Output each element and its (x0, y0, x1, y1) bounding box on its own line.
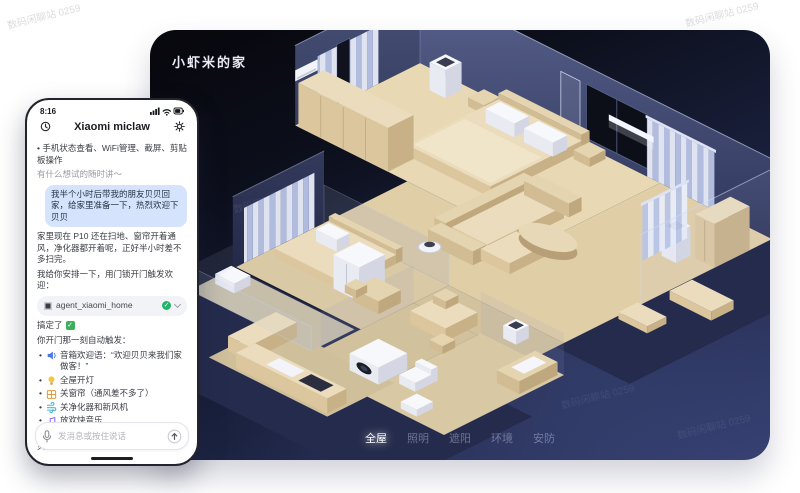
chat-title: Xiaomi miclaw (74, 121, 150, 133)
send-button[interactable] (167, 429, 182, 444)
action-item: 关窗帘（通风差不多了） (39, 388, 187, 400)
watermark: 数码闲聊站 0259 (5, 0, 81, 32)
chat-transcript: 手机状态查看、WiFi管理、截屏、剪贴板操作 有什么想试的随时讲～ 我半个小时后… (27, 138, 197, 453)
speaker-icon (46, 350, 57, 361)
mic-icon[interactable] (42, 430, 52, 443)
settings-button[interactable] (172, 119, 186, 133)
feature-bullet: 手机状态查看、WiFi管理、截屏、剪贴板操作 (37, 143, 187, 166)
action-text: 关净化器和新风机 (60, 402, 128, 414)
message-input[interactable] (56, 430, 163, 442)
fan-icon (46, 402, 57, 413)
assistant-reply: 家里现在 P10 还在扫地、窗帘开着通风，净化器都开着呢，正好半小时差不多扫完。 (37, 231, 187, 266)
chat-header: Xiaomi miclaw (27, 116, 197, 138)
gear-icon (174, 121, 185, 132)
agent-card[interactable]: agent_xiaomi_home ✓ (37, 296, 187, 316)
status-bar: 8:16 (27, 100, 197, 116)
room-nav: 全屋 照明 遮阳 环境 安防 (150, 430, 770, 446)
agent-icon (44, 302, 52, 310)
assistant-reply: 我给你安排一下，用门锁开门触发欢迎： (37, 269, 187, 292)
floorplan-3d (150, 30, 770, 460)
trigger-intro: 你开门那一刻自动触发： (37, 335, 187, 347)
screenshot-root: 小虾米的家 全屋 照明 遮阳 环境 安防 数码闲聊站 0259 数码闲聊站 02… (0, 0, 800, 493)
agent-name: agent_xiaomi_home (56, 300, 158, 312)
action-item: 全屋开灯 (39, 375, 187, 387)
action-item: 关净化器和新风机 (39, 402, 187, 414)
done-text: 搞定了 (37, 320, 63, 332)
action-text: 全屋开灯 (60, 375, 94, 387)
signal-icon (150, 108, 160, 116)
smart-home-panel: 小虾米的家 全屋 照明 遮阳 环境 安防 (150, 30, 770, 460)
chevron-down-icon (174, 301, 181, 308)
wifi-icon (163, 110, 170, 113)
nav-tab-whole-house[interactable]: 全屋 (365, 430, 387, 446)
status-icons (150, 106, 184, 116)
nav-tab-security[interactable]: 安防 (533, 430, 555, 446)
user-message-bubble: 我半个小时后带我的朋友贝贝回家，给家里准备一下，热烈欢迎下贝贝 (45, 185, 187, 228)
phone-mockup: 8:16 (25, 98, 199, 466)
watermark: 数码闲聊站 0259 (683, 0, 759, 30)
check-emoji-icon: ✓ (66, 321, 75, 330)
bulb-icon (46, 375, 57, 386)
status-time: 8:16 (40, 107, 56, 116)
battery-icon (174, 108, 184, 114)
home-title: 小虾米的家 (172, 52, 247, 71)
action-item: 音箱欢迎语：“欢迎贝贝来我们家做客！” (39, 350, 187, 373)
curtain-icon (46, 389, 57, 400)
action-text: 音箱欢迎语：“欢迎贝贝来我们家做客！” (60, 350, 187, 373)
history-icon (40, 121, 51, 132)
nav-tab-lighting[interactable]: 照明 (407, 430, 429, 446)
message-input-bar[interactable] (35, 422, 189, 450)
nav-tab-shading[interactable]: 遮阳 (449, 430, 471, 446)
nav-tab-environment[interactable]: 环境 (491, 430, 513, 446)
history-button[interactable] (38, 119, 52, 133)
assistant-prompt: 有什么想试的随时讲～ (37, 169, 187, 181)
check-circle-icon: ✓ (162, 301, 171, 310)
action-text: 关窗帘（通风差不多了） (60, 388, 154, 400)
home-indicator (91, 457, 133, 460)
